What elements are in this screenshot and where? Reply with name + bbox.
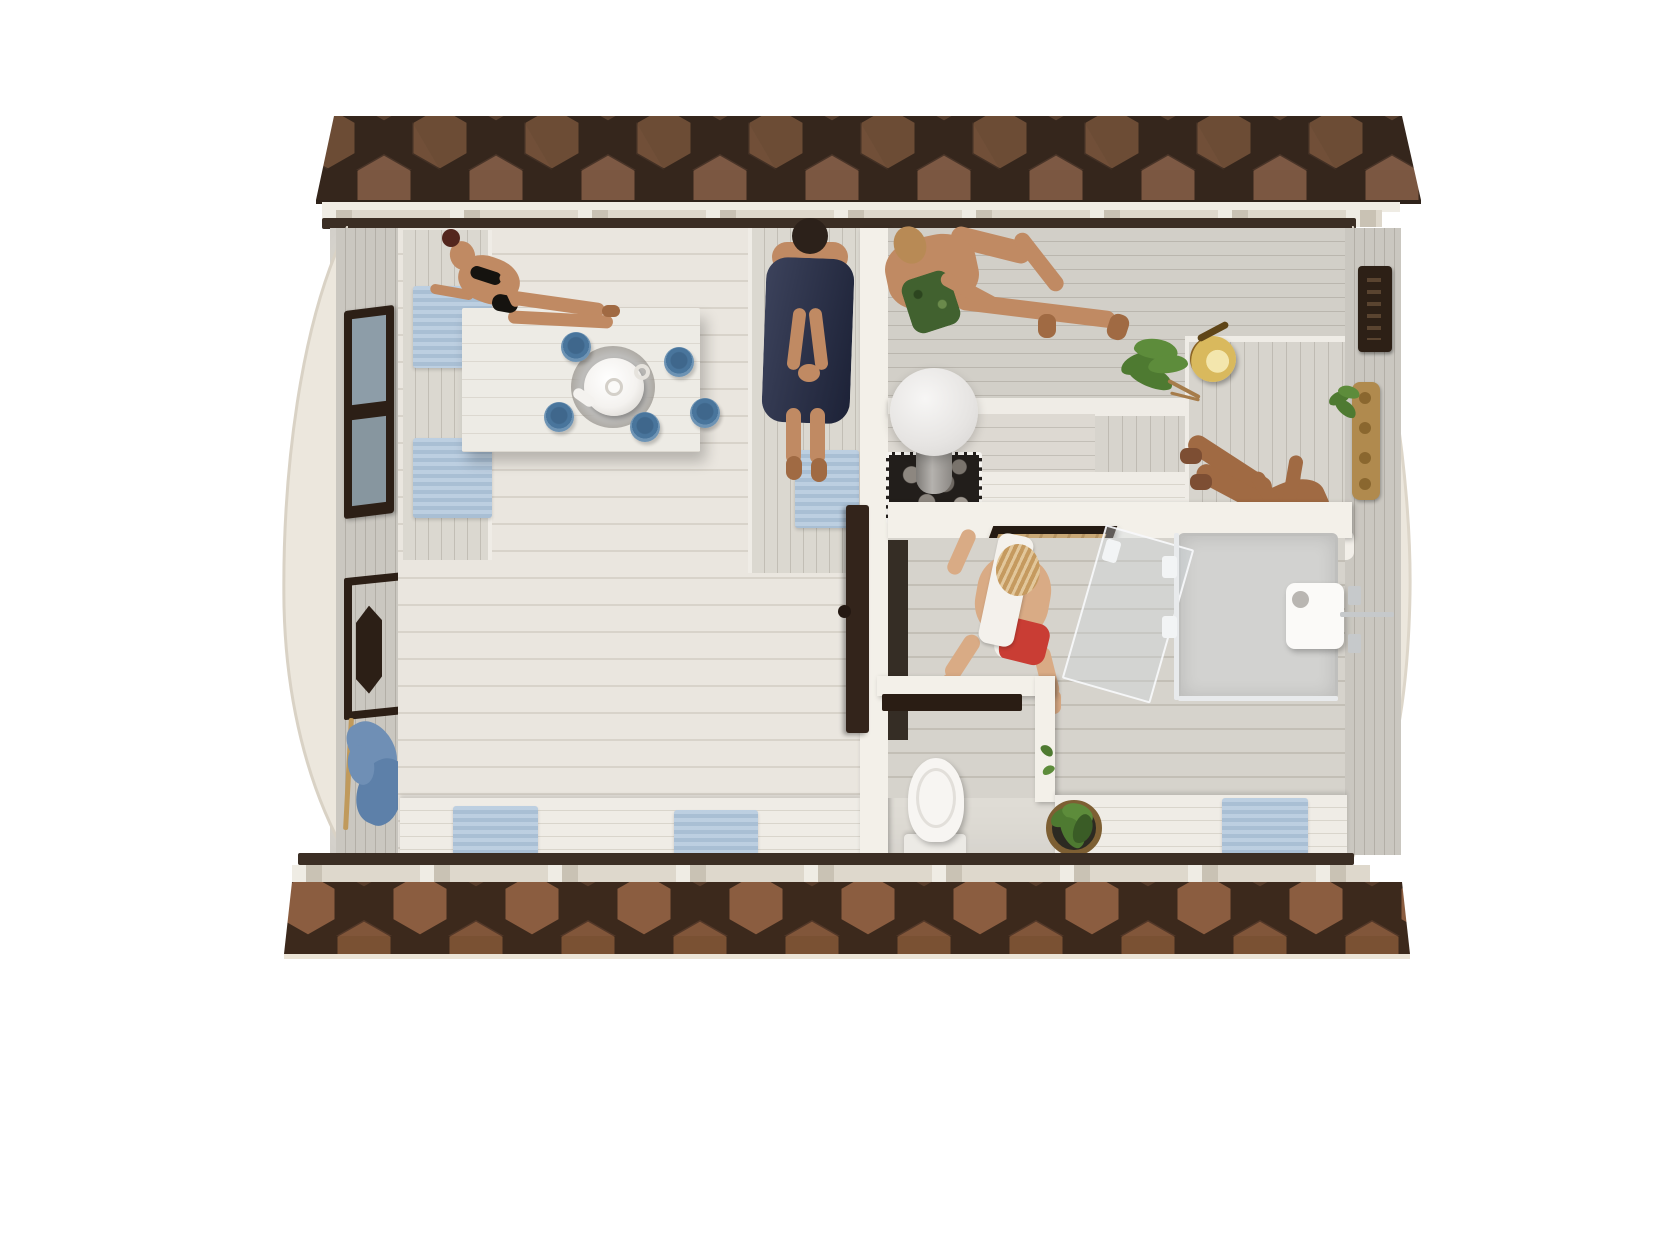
toilet (902, 756, 970, 860)
rack-peg (1359, 478, 1371, 490)
shower-valve (1348, 586, 1361, 605)
foot (811, 458, 827, 482)
roof-bottom (280, 880, 1415, 962)
head-hair (792, 218, 828, 254)
hair-bun (442, 229, 460, 247)
person-green-shorts (880, 218, 1190, 358)
blue-mat (674, 810, 758, 855)
shower-glass-frame (1178, 696, 1338, 701)
teacup (664, 347, 694, 377)
rack-peg (1359, 452, 1371, 464)
teacup (690, 398, 720, 428)
teapot-lid (605, 378, 623, 396)
rain-shower-head (1286, 583, 1344, 649)
entrance-door (344, 572, 406, 721)
toilet-seat-ring (916, 768, 956, 828)
door-window-octagon (356, 604, 382, 695)
shower-hinge (1162, 556, 1177, 578)
person-woman-bikini (430, 225, 640, 355)
bucket-body (1190, 336, 1236, 382)
hands (798, 364, 820, 382)
shower-hinge (1162, 616, 1177, 638)
foot (602, 305, 620, 317)
blue-mat (453, 806, 538, 855)
toilet-cubicle-right-wall (1035, 676, 1055, 802)
sauna-step (1095, 412, 1185, 472)
window (344, 305, 394, 519)
wall-cut-line-bottom (298, 853, 1354, 865)
towel-wrap (761, 257, 855, 425)
plant-basket (1042, 796, 1108, 860)
toilet-door-header (882, 694, 1022, 711)
vent-slats (1367, 278, 1381, 340)
brass-bucket (1188, 330, 1238, 388)
sauna-cabin-render (0, 0, 1680, 1260)
teacup (630, 412, 660, 442)
foot (1180, 448, 1202, 464)
teacup (544, 402, 574, 432)
foot (786, 456, 802, 480)
blue-towel (1222, 798, 1308, 855)
partition-door-panel (846, 505, 869, 733)
window-pane-lower (352, 416, 386, 506)
shower-arm-pipe (1340, 612, 1394, 617)
foot (1038, 314, 1056, 338)
person-navy-towel (752, 216, 864, 482)
arm (945, 527, 978, 577)
toilet-cubicle-top-wall (877, 676, 1055, 696)
leg (810, 408, 825, 464)
shower-head-ball (1292, 591, 1309, 608)
window-pane-upper (352, 315, 386, 405)
head (996, 544, 1040, 596)
shower-valve (1348, 634, 1361, 653)
heater-globe-lamp (890, 368, 978, 456)
teapot (584, 358, 644, 416)
foot (1190, 474, 1212, 490)
wall-plant (1328, 384, 1364, 424)
wall-vent (1358, 266, 1392, 352)
door-knob (838, 605, 851, 618)
teapot-handle (634, 364, 650, 380)
roof-top (300, 114, 1430, 206)
